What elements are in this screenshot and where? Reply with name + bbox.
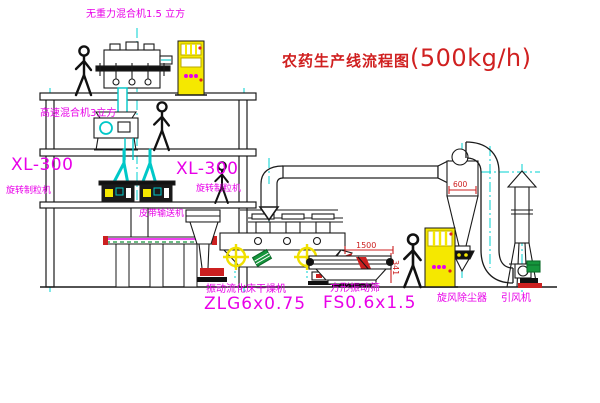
granulator-right-model-label: XL-300 xyxy=(176,161,238,178)
cyclone-diameter-dimension: 600 xyxy=(453,181,467,189)
fan-label: 引风机 xyxy=(501,294,531,304)
process-flow-diagram: 无重力混合机1.5 立方 农药生产线流程图 (500kg/h) 高速混合机3立方… xyxy=(0,0,600,403)
worker-roof xyxy=(76,46,91,95)
high-speed-mixer-label: 高速混合机3立方 xyxy=(40,109,116,119)
granulator-left-name-label: 旋转制粒机 xyxy=(6,187,51,196)
diagram-title: 农药生产线流程图 (500kg/h) xyxy=(282,44,531,72)
sieve-height-dimension: 341 xyxy=(391,260,399,275)
worker-ground xyxy=(404,235,420,287)
worker-level2 xyxy=(154,102,169,150)
title-text: 农药生产线流程图 xyxy=(282,50,410,71)
dryer-model-label: ZLG6x0.75 xyxy=(204,296,306,313)
control-cabinet-2 xyxy=(422,228,458,287)
sieve-model-label: FS0.6x1.5 xyxy=(323,295,416,312)
dryer-exhaust-duct xyxy=(260,161,448,220)
control-cabinet-1 xyxy=(175,41,207,95)
title-capacity: (500kg/h) xyxy=(410,44,531,72)
cyclone-label: 旋风除尘器 xyxy=(437,294,487,304)
belt-conveyor-label: 皮带输送机 xyxy=(139,210,184,219)
gravity-mixer-label: 无重力混合机1.5 立方 xyxy=(86,10,185,20)
granulator-right xyxy=(137,181,175,202)
granulator-right-name-label: 旋转制粒机 xyxy=(196,185,241,194)
sieve-length-dimension: 1500 xyxy=(356,242,376,250)
granulator-left-model-label: XL-300 xyxy=(11,157,73,174)
induced-draft-fan xyxy=(515,261,542,288)
granulator-left xyxy=(99,181,137,202)
